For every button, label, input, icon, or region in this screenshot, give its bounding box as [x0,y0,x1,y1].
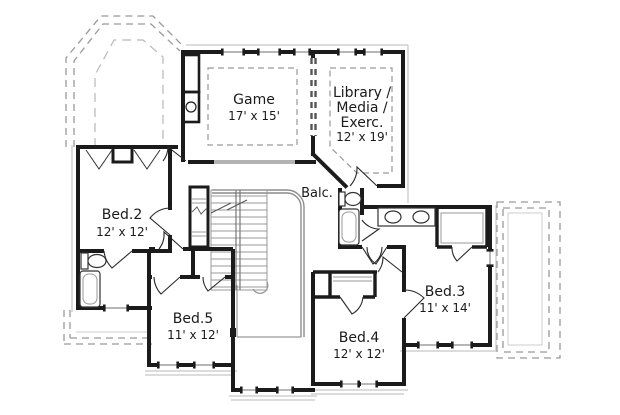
double-vanity-fixture [378,208,435,226]
bathtub-fixture [339,209,359,245]
floor-plan-canvas: Game 17' x 15' Library / Media / Exerc. … [0,0,620,415]
cased-opening [214,161,295,163]
window [193,362,215,369]
closets-layer [86,55,487,297]
room-label-game: Game [233,92,275,108]
understair-closet-door [203,277,225,291]
balcony-label: Balc. [301,186,333,201]
open-to-below-void [237,285,301,337]
game-library-divider [312,58,316,136]
window [293,49,311,56]
room-label-bed4: Bed.4 [339,330,380,346]
room-label-library-2: Media / [336,100,387,116]
floor-plan-svg: Game 17' x 15' Library / Media / Exerc. … [0,0,620,415]
bed2-closet [86,147,160,169]
bed2-bath-door [104,251,132,268]
staircase [211,190,268,293]
roof-outline-bottom-left [64,310,152,344]
bathtub-fixture [80,271,100,307]
room-label-bed2: Bed.2 [102,207,142,223]
window [257,49,281,56]
room-dims-game: 17' x 15' [228,109,280,123]
library-door [350,167,377,186]
bed4-closet-door [340,297,363,314]
window [361,381,378,388]
toilet-room-door [362,220,379,241]
room-label-bed3: Bed.3 [425,284,465,300]
bed2-entry-door [150,208,170,235]
bath-double-door-right [367,247,387,264]
bay-roof-outline [66,16,183,147]
window [103,305,129,312]
window [363,49,383,56]
roof-outline-right [497,202,560,358]
chase-closet [183,55,199,122]
window [276,387,294,394]
room-dims-bed2: 12' x 12' [96,225,148,239]
window [487,249,494,267]
room-dims-bed4: 12' x 12' [333,347,385,361]
toilet-fixture [81,253,106,269]
room-dims-bed5: 11' x 12' [167,328,219,342]
wall-jog [230,328,236,337]
bed4-hall-door [378,257,402,272]
bed3-closet-door [452,247,472,261]
window [221,49,245,56]
room-dims-bed3: 11' x 14' [419,301,471,315]
window [157,362,179,369]
room-dims-library: 12' x 19' [336,130,388,144]
toilet-fixture [339,192,361,206]
bed4-closet [313,272,377,297]
balcony-railing [212,190,304,337]
linen-closet [190,187,208,247]
window [417,342,439,349]
room-label-bed5: Bed.5 [173,311,213,327]
room-label-library-1: Library / [333,85,391,101]
window [451,342,473,349]
window [340,381,360,388]
room-label-library-3: Exerc. [341,115,384,131]
bed5-entry-door [154,277,180,294]
window [240,387,258,394]
doors-layer [104,147,472,318]
window [337,49,357,56]
bed3-closet [437,209,487,247]
